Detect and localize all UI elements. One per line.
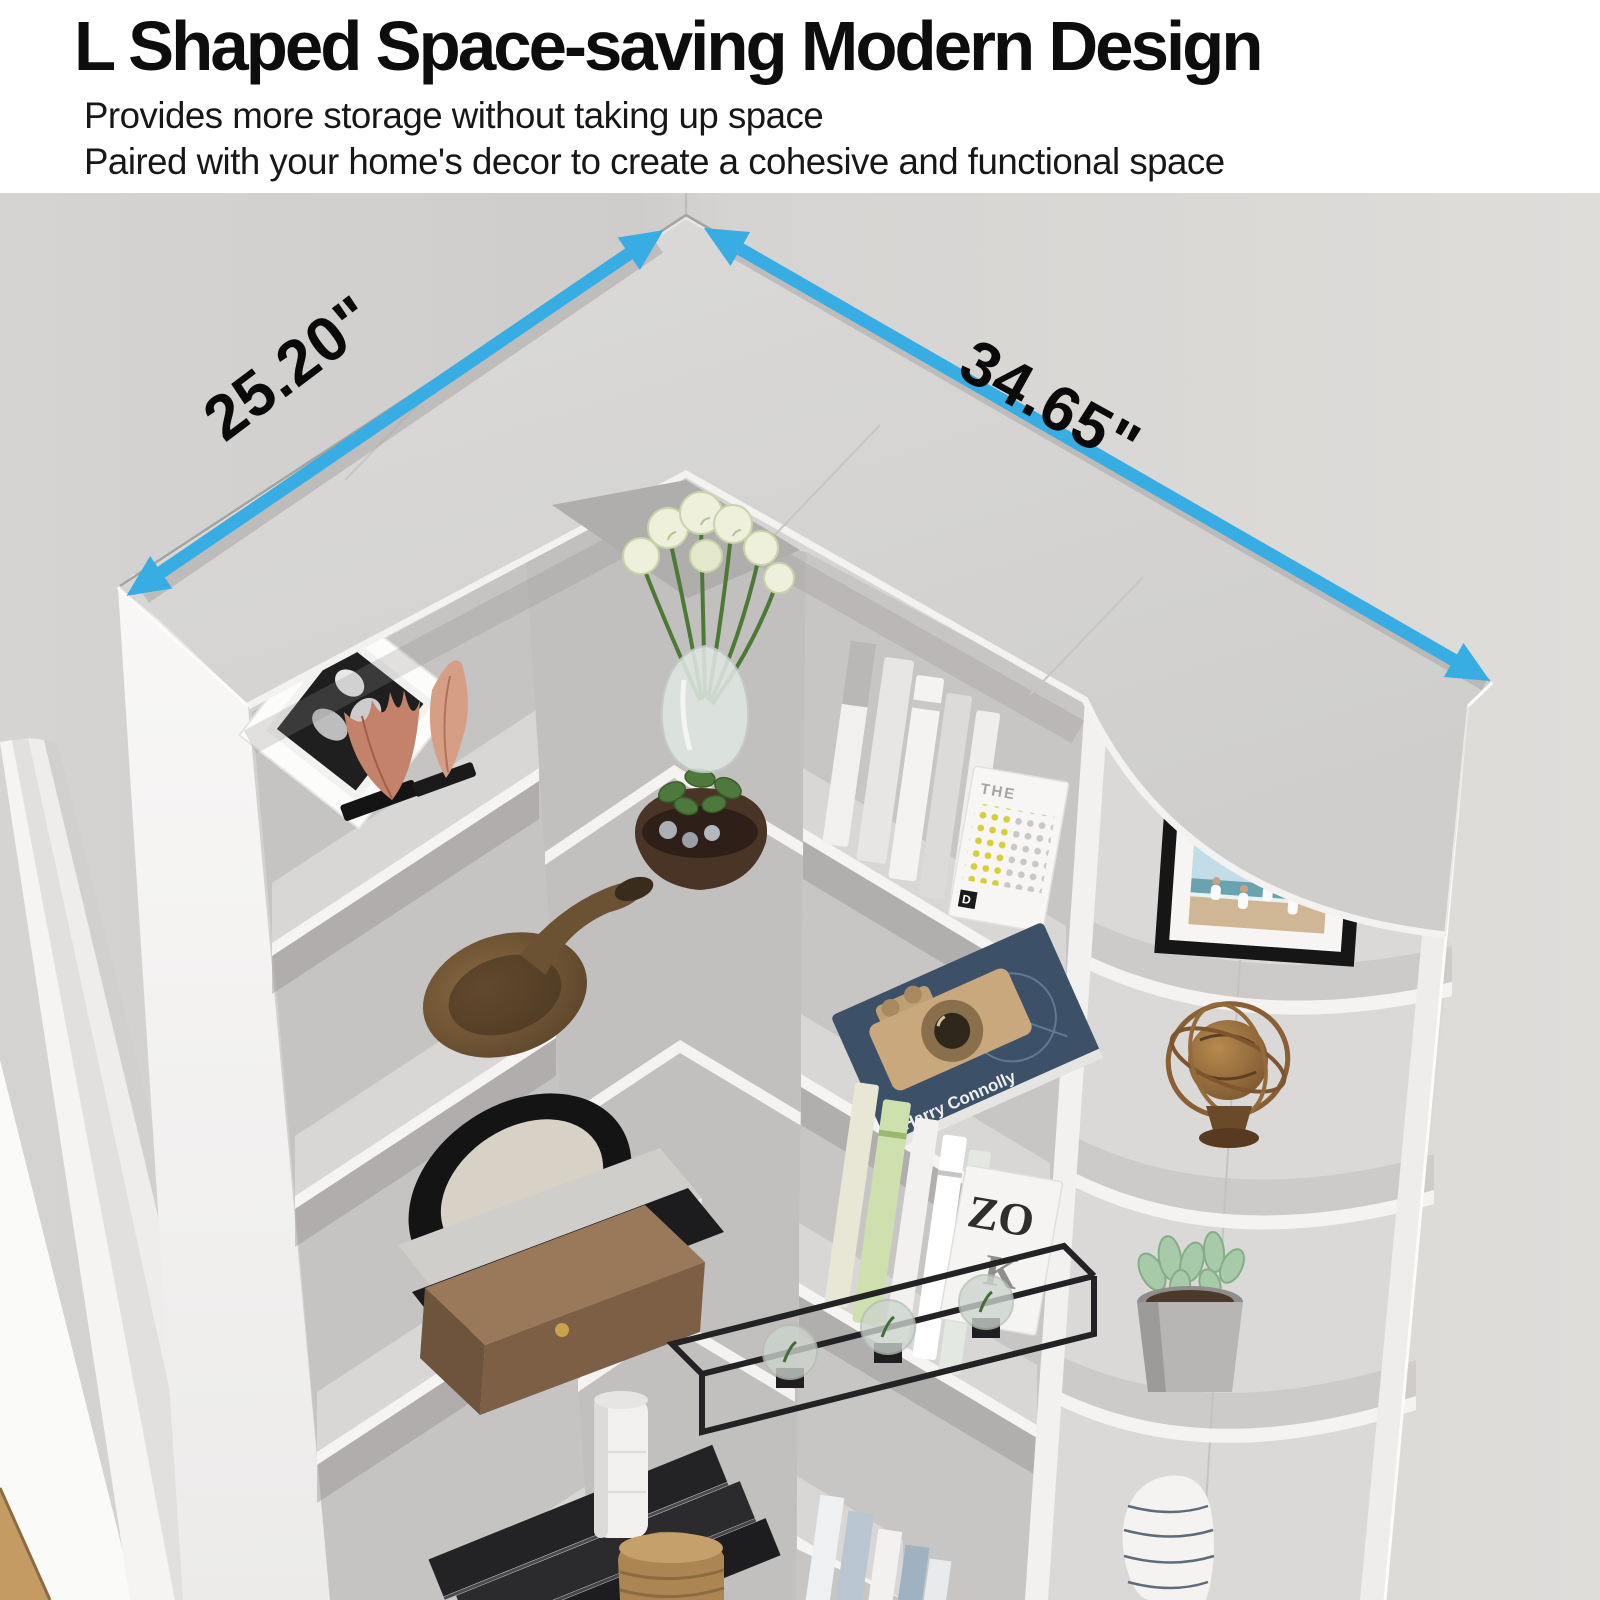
white-candle-vase bbox=[594, 1391, 648, 1538]
product-photo: LIFE AT THE EDGE bbox=[0, 193, 1600, 1600]
striped-vase bbox=[1123, 1476, 1214, 1600]
succulent-pot bbox=[1133, 1231, 1249, 1392]
product-marketing-image: { "header": { "title": "L Shaped Space-s… bbox=[0, 0, 1600, 1600]
subtitle-line-1: Provides more storage without taking up … bbox=[84, 94, 1585, 138]
header-banner: L Shaped Space-saving Modern Design Prov… bbox=[0, 0, 1600, 193]
page-title: L Shaped Space-saving Modern Design bbox=[74, 6, 1577, 86]
glass-vase-body bbox=[662, 646, 748, 772]
subtitle-line-2: Paired with your home's decor to create … bbox=[84, 140, 1585, 184]
wicker-basket bbox=[618, 1532, 724, 1600]
